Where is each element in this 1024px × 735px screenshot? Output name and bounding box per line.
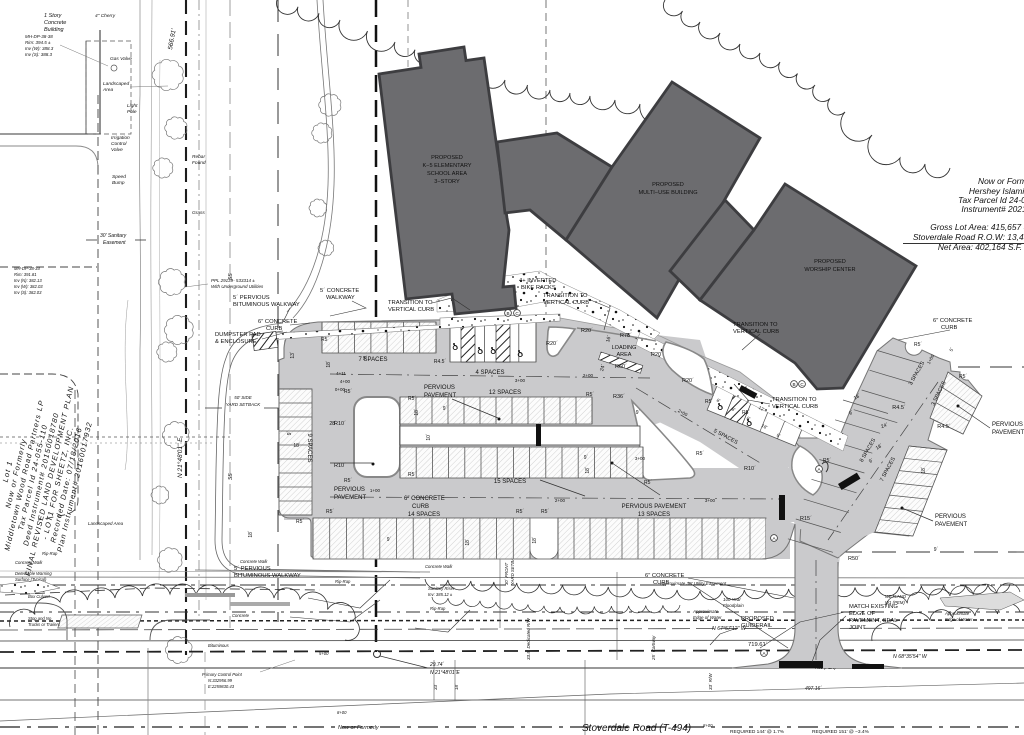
svg-text:Gross Lot Area: 415,657 S.F.: Gross Lot Area: 415,657 S.F. <box>930 222 1024 232</box>
svg-text:5+00: 5+00 <box>319 651 329 656</box>
svg-text:18´: 18´ <box>585 466 591 474</box>
svg-text:18´: 18´ <box>921 466 927 474</box>
svg-text:0+00: 0+00 <box>335 387 346 392</box>
svg-text:PAVEMENT: PAVEMENT <box>935 522 967 528</box>
svg-text:R5´: R5´ <box>408 472 416 478</box>
svg-text:BIKE RACKS: BIKE RACKS <box>521 285 556 291</box>
svg-text:VERTICAL CURB: VERTICAL CURB <box>772 404 818 410</box>
svg-text:Trucks or Trailers: Trucks or Trailers <box>28 622 61 627</box>
svg-text:5´ PERVIOUS: 5´ PERVIOUS <box>234 566 271 572</box>
svg-text:3+00: 3+00 <box>635 456 646 461</box>
svg-text:TRANSITION TO: TRANSITION TO <box>388 300 433 306</box>
svg-text:R5´: R5´ <box>344 389 352 395</box>
svg-text:B: B <box>792 382 795 387</box>
svg-text:BITUMINOUS WALKWAY: BITUMINOUS WALKWAY <box>233 302 300 308</box>
svg-text:TRANSITION TO: TRANSITION TO <box>733 322 778 328</box>
svg-text:Inv (W): 388.3: Inv (W): 388.3 <box>25 46 54 51</box>
svg-text:9´: 9´ <box>363 356 368 362</box>
svg-text:LOADING: LOADING <box>612 345 637 351</box>
svg-text:Concrete: Concrete <box>44 20 66 26</box>
svg-text:2+00: 2+00 <box>555 498 566 503</box>
svg-text:30' Sanitary: 30' Sanitary <box>100 233 127 239</box>
svg-text:Grass: Grass <box>192 210 205 216</box>
svg-text:SS: SS <box>228 473 234 480</box>
svg-text:AREA: AREA <box>617 352 632 358</box>
svg-text:Approximate: Approximate <box>944 611 970 616</box>
svg-text:Bituminous: Bituminous <box>208 643 230 648</box>
svg-text:4+00: 4+00 <box>340 379 351 384</box>
svg-text:Stoverdale Road (T-494): Stoverdale Road (T-494) <box>582 723 691 734</box>
svg-text:Rebar: Rebar <box>192 154 205 160</box>
svg-text:R5´: R5´ <box>914 342 922 348</box>
svg-text:Rip-Rap: Rip-Rap <box>42 551 58 556</box>
svg-text:100 Year: 100 Year <box>723 597 741 602</box>
svg-text:N 68°35'54" W: N 68°35'54" W <box>893 654 928 660</box>
svg-text:13´: 13´ <box>290 351 296 359</box>
svg-text:Edge of Water: Edge of Water <box>693 615 722 620</box>
svg-text:R15´: R15´ <box>800 516 812 522</box>
svg-text:50' SIDE: 50' SIDE <box>234 395 253 400</box>
svg-text:25´ Cartway: 25´ Cartway <box>651 635 656 661</box>
svg-text:Inv (S): 388.3: Inv (S): 388.3 <box>25 52 53 57</box>
svg-text:R50´: R50´ <box>848 556 860 562</box>
svg-text:Rip-Rap: Rip-Rap <box>430 606 446 611</box>
svg-text:9 SPACES: 9 SPACES <box>306 434 312 463</box>
svg-text:Concrete Walk: Concrete Walk <box>15 560 43 565</box>
svg-text:MH-DP-38-34: MH-DP-38-34 <box>14 266 40 271</box>
svg-text:R5´: R5´ <box>705 399 713 405</box>
svg-text:6″ CONCRETE: 6″ CONCRETE <box>645 573 685 579</box>
svg-text:18´: 18´ <box>414 408 420 416</box>
svg-text:R20´: R20´ <box>682 378 694 384</box>
svg-text:R5´: R5´ <box>516 509 524 515</box>
svg-text:15 SPACES: 15 SPACES <box>494 479 526 485</box>
svg-text:R5´: R5´ <box>696 451 704 457</box>
svg-text:R5´: R5´ <box>586 392 594 398</box>
svg-text:33´ R/W: 33´ R/W <box>708 673 713 690</box>
svg-text:3+00: 3+00 <box>705 498 716 503</box>
svg-text:10´: 10´ <box>426 433 432 441</box>
svg-text:2+00: 2+00 <box>583 373 594 378</box>
svg-text:PERVIOUS PAVEMENT: PERVIOUS PAVEMENT <box>622 504 687 510</box>
svg-text:6″ CONCRETE: 6″ CONCRETE <box>404 496 445 502</box>
svg-text:Bump: Bump <box>112 180 125 186</box>
svg-text:Box Culvert: Box Culvert <box>28 594 50 599</box>
svg-text:9´: 9´ <box>636 410 641 416</box>
svg-text:8+00: 8+00 <box>703 723 713 728</box>
svg-text:Area: Area <box>102 87 113 93</box>
svg-text:R60´: R60´ <box>615 364 627 370</box>
svg-text:PERVIOUS: PERVIOUS <box>992 422 1023 428</box>
svg-text:B: B <box>506 311 509 316</box>
svg-text:Now or Formerly: Now or Formerly <box>978 176 1024 186</box>
svg-text:1+00: 1+00 <box>370 488 381 493</box>
svg-text:33.5´ Dedicated R/W: 33.5´ Dedicated R/W <box>526 617 531 660</box>
svg-text:R5´: R5´ <box>344 478 352 484</box>
svg-text:Inv (S): 382.03: Inv (S): 382.03 <box>14 290 42 295</box>
svg-text:9´: 9´ <box>443 406 448 412</box>
svg-text:R10´: R10´ <box>744 466 756 472</box>
svg-text:& ENCLOSURE: & ENCLOSURE <box>215 339 257 345</box>
svg-text:R20´: R20´ <box>581 328 593 334</box>
svg-text:Stoverdale Road R.O.W: 13,495: Stoverdale Road R.O.W: 13,495 S. <box>913 232 1024 242</box>
svg-text:R5´: R5´ <box>296 519 304 525</box>
svg-text:18´: 18´ <box>532 536 538 544</box>
svg-text:29.74´: 29.74´ <box>429 662 445 668</box>
svg-text:Inv (N): 382.13: Inv (N): 382.13 <box>14 278 42 283</box>
svg-text:JOINT: JOINT <box>849 625 866 631</box>
svg-text:1 Story: 1 Story <box>44 13 63 19</box>
svg-text:PROPOSED: PROPOSED <box>741 616 774 622</box>
svg-text:REQUIRED 151' @ −3.4%: REQUIRED 151' @ −3.4% <box>812 729 870 735</box>
svg-text:Instrument# 2021039: Instrument# 2021039 <box>961 204 1024 214</box>
svg-text:CURB: CURB <box>412 504 429 510</box>
svg-text:30´ FRONT: 30´ FRONT <box>504 562 509 585</box>
svg-text:TRANSITION TO: TRANSITION TO <box>772 397 817 403</box>
svg-text:Detectable Warning: Detectable Warning <box>15 571 52 576</box>
svg-text:EDGE OF: EDGE OF <box>849 611 876 617</box>
svg-text:497.16´: 497.16´ <box>805 686 822 692</box>
svg-text:N 21°48'01"E: N 21°48'01"E <box>430 670 460 676</box>
svg-text:E:2259830.43: E:2259830.43 <box>208 684 235 689</box>
svg-text:Easement: Easement <box>103 240 126 246</box>
svg-text:PROPOSED: PROPOSED <box>652 182 684 188</box>
svg-text:9´: 9´ <box>387 537 392 543</box>
svg-text:Irrigation: Irrigation <box>111 135 130 141</box>
svg-text:Rim: 391.81: Rim: 391.81 <box>14 272 37 277</box>
svg-text:Found: Found <box>192 160 206 166</box>
svg-text:VERTICAL CURB: VERTICAL CURB <box>388 307 434 313</box>
svg-text:R5´: R5´ <box>408 396 416 402</box>
svg-text:R20´: R20´ <box>546 341 558 347</box>
svg-text:Building: Building <box>44 27 65 33</box>
svg-text:R20´: R20´ <box>651 352 663 358</box>
svg-text:4 SPACES: 4 SPACES <box>476 370 505 376</box>
svg-text:3+00: 3+00 <box>515 378 526 383</box>
svg-text:R4.5´: R4.5´ <box>892 405 906 411</box>
svg-text:Primary Control Point: Primary Control Point <box>202 672 243 677</box>
svg-text:PAVEMENT, SEAL: PAVEMENT, SEAL <box>849 618 898 624</box>
svg-text:5´ PERVIOUS: 5´ PERVIOUS <box>233 295 270 301</box>
svg-text:PERVIOUS: PERVIOUS <box>935 514 966 520</box>
svg-text:R5´: R5´ <box>959 374 967 380</box>
svg-text:28´: 28´ <box>329 421 337 427</box>
svg-text:Inv (W): 382.03: Inv (W): 382.03 <box>14 284 43 289</box>
svg-text:R5´: R5´ <box>326 509 334 515</box>
svg-text:Concrete: Concrete <box>232 613 250 618</box>
svg-text:Light: Light <box>127 103 138 109</box>
svg-text:R4.5´: R4.5´ <box>434 359 447 365</box>
svg-text:Approximate: Approximate <box>692 609 719 614</box>
svg-text:MATCH EXISTING: MATCH EXISTING <box>849 604 898 610</box>
svg-text:Edge of Water: Edge of Water <box>945 617 973 622</box>
svg-text:Gas Valve: Gas Valve <box>110 56 132 62</box>
svg-text:4+11: 4+11 <box>336 371 346 376</box>
svg-text:WALKWAY: WALKWAY <box>326 295 355 301</box>
svg-text:Sanitary Riser: Sanitary Riser <box>428 586 455 591</box>
svg-text:3−STORY: 3−STORY <box>434 179 460 185</box>
svg-text:WORSHIP CENTER: WORSHIP CENTER <box>804 267 855 273</box>
svg-text:9´: 9´ <box>934 547 939 553</box>
svg-text:PAVEMENT: PAVEMENT <box>992 430 1024 436</box>
svg-text:MULTI−USE BUILDING: MULTI−USE BUILDING <box>638 190 697 196</box>
svg-text:K−5 ELEMENTARY: K−5 ELEMENTARY <box>422 163 471 169</box>
svg-text:MH-DP-38-38: MH-DP-38-38 <box>25 34 53 39</box>
svg-text:18´: 18´ <box>465 538 471 546</box>
svg-text:Control: Control <box>111 141 127 147</box>
svg-text:Landscaped: Landscaped <box>103 81 129 87</box>
svg-text:SCHOOL AREA: SCHOOL AREA <box>427 171 467 177</box>
svg-text:18´: 18´ <box>248 530 254 538</box>
svg-text:Landscaped Area: Landscaped Area <box>88 521 124 526</box>
svg-text:WETLAND: WETLAND <box>885 594 906 599</box>
svg-text:CURB: CURB <box>653 580 670 586</box>
svg-text:DUMPSTER PAD: DUMPSTER PAD <box>215 332 261 338</box>
svg-text:PERVIOUS: PERVIOUS <box>424 385 455 391</box>
svg-text:12 SPACES: 12 SPACES <box>489 390 521 396</box>
svg-text:BITUMINOUS WALKWAY: BITUMINOUS WALKWAY <box>234 573 301 579</box>
svg-text:R4.5´: R4.5´ <box>937 424 951 430</box>
svg-text:13 SPACES: 13 SPACES <box>638 512 670 518</box>
svg-text:R78´: R78´ <box>620 333 632 339</box>
svg-text:Stop and No: Stop and No <box>28 616 52 621</box>
svg-text:18´: 18´ <box>293 443 301 449</box>
svg-text:14 SPACES: 14 SPACES <box>408 512 440 518</box>
svg-text:PROPOSED: PROPOSED <box>431 155 463 161</box>
svg-text:PROPOSED: PROPOSED <box>814 259 846 265</box>
svg-text:R5´: R5´ <box>541 509 549 515</box>
svg-text:PERVIOUS: PERVIOUS <box>334 487 365 493</box>
svg-text:PPL 29139- 533314 ±: PPL 29139- 533314 ± <box>211 278 255 283</box>
svg-text:Valve: Valve <box>111 147 123 153</box>
svg-text:R36´: R36´ <box>613 394 625 400</box>
svg-text:R5´: R5´ <box>321 337 329 343</box>
svg-text:PAVEMENT: PAVEMENT <box>334 495 366 501</box>
svg-text:Now or Formerly: Now or Formerly <box>338 725 380 731</box>
svg-text:Rip-Rap: Rip-Rap <box>335 579 351 584</box>
svg-text:VERTICAL CURB: VERTICAL CURB <box>733 329 779 335</box>
svg-text:6″ CONCRETE: 6″ CONCRETE <box>258 319 298 325</box>
svg-text:4+ INVERTED: 4+ INVERTED <box>519 278 556 284</box>
svg-text:8+00: 8+00 <box>337 710 347 715</box>
svg-text:4" Cherry: 4" Cherry <box>95 13 116 19</box>
svg-text:9´: 9´ <box>584 455 589 461</box>
svg-text:Pole: Pole <box>127 109 137 115</box>
svg-text:CURB: CURB <box>266 326 283 332</box>
svg-text:GUIDERAIL: GUIDERAIL <box>741 623 773 629</box>
svg-text:Concrete Walk: Concrete Walk <box>240 559 268 564</box>
svg-text:Rim: 394.5 ±: Rim: 394.5 ± <box>25 40 51 45</box>
svg-text:VERTICAL CURB: VERTICAL CURB <box>543 300 589 306</box>
svg-text:TRANSITION TO: TRANSITION TO <box>543 293 588 299</box>
svg-text:REQUIRED 144' @ 1.7%: REQUIRED 144' @ 1.7% <box>730 729 785 735</box>
svg-text:9´: 9´ <box>287 430 293 435</box>
svg-text:Speed: Speed <box>112 174 126 180</box>
svg-text:Concrete Walk: Concrete Walk <box>425 564 453 569</box>
svg-text:R10´: R10´ <box>334 463 346 469</box>
svg-text:5´ CONCRETE: 5´ CONCRETE <box>320 288 359 294</box>
svg-text:6″ CONCRETE: 6″ CONCRETE <box>933 318 973 324</box>
svg-text:18´: 18´ <box>326 360 332 368</box>
svg-text:Inv: 385.12 ±: Inv: 385.12 ± <box>428 592 453 597</box>
svg-text:PAVEMENT: PAVEMENT <box>424 393 456 399</box>
svg-text:N:332956.99: N:332956.99 <box>208 678 233 683</box>
svg-text:With Underground Utilities: With Underground Utilities <box>211 284 264 289</box>
svg-text:YARD SETBACK: YARD SETBACK <box>226 402 262 407</box>
